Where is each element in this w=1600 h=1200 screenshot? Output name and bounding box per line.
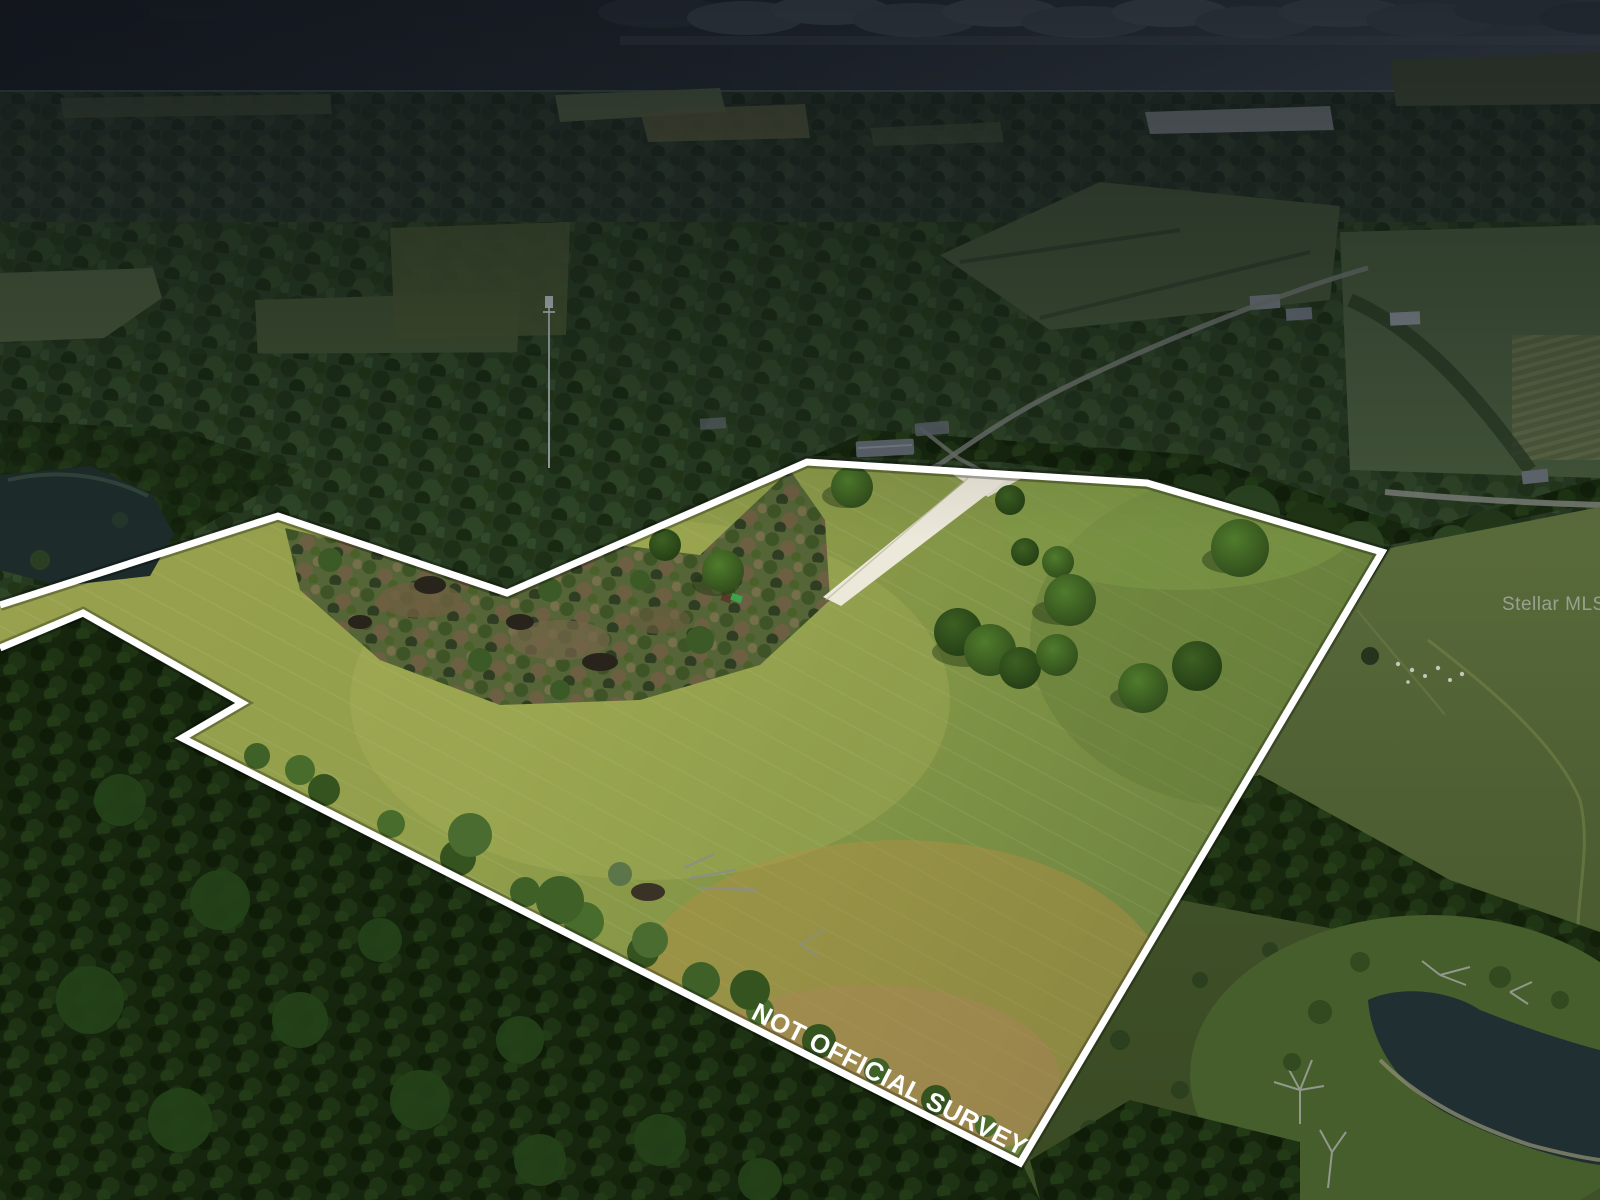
mls-watermark: Stellar MLS xyxy=(1502,594,1600,615)
aerial-photo-canvas: NOT OFFICIAL SURVEY Stellar MLS xyxy=(0,0,1600,1200)
bush xyxy=(1361,647,1379,665)
aerial-photo: NOT OFFICIAL SURVEY Stellar MLS xyxy=(0,0,1600,1200)
